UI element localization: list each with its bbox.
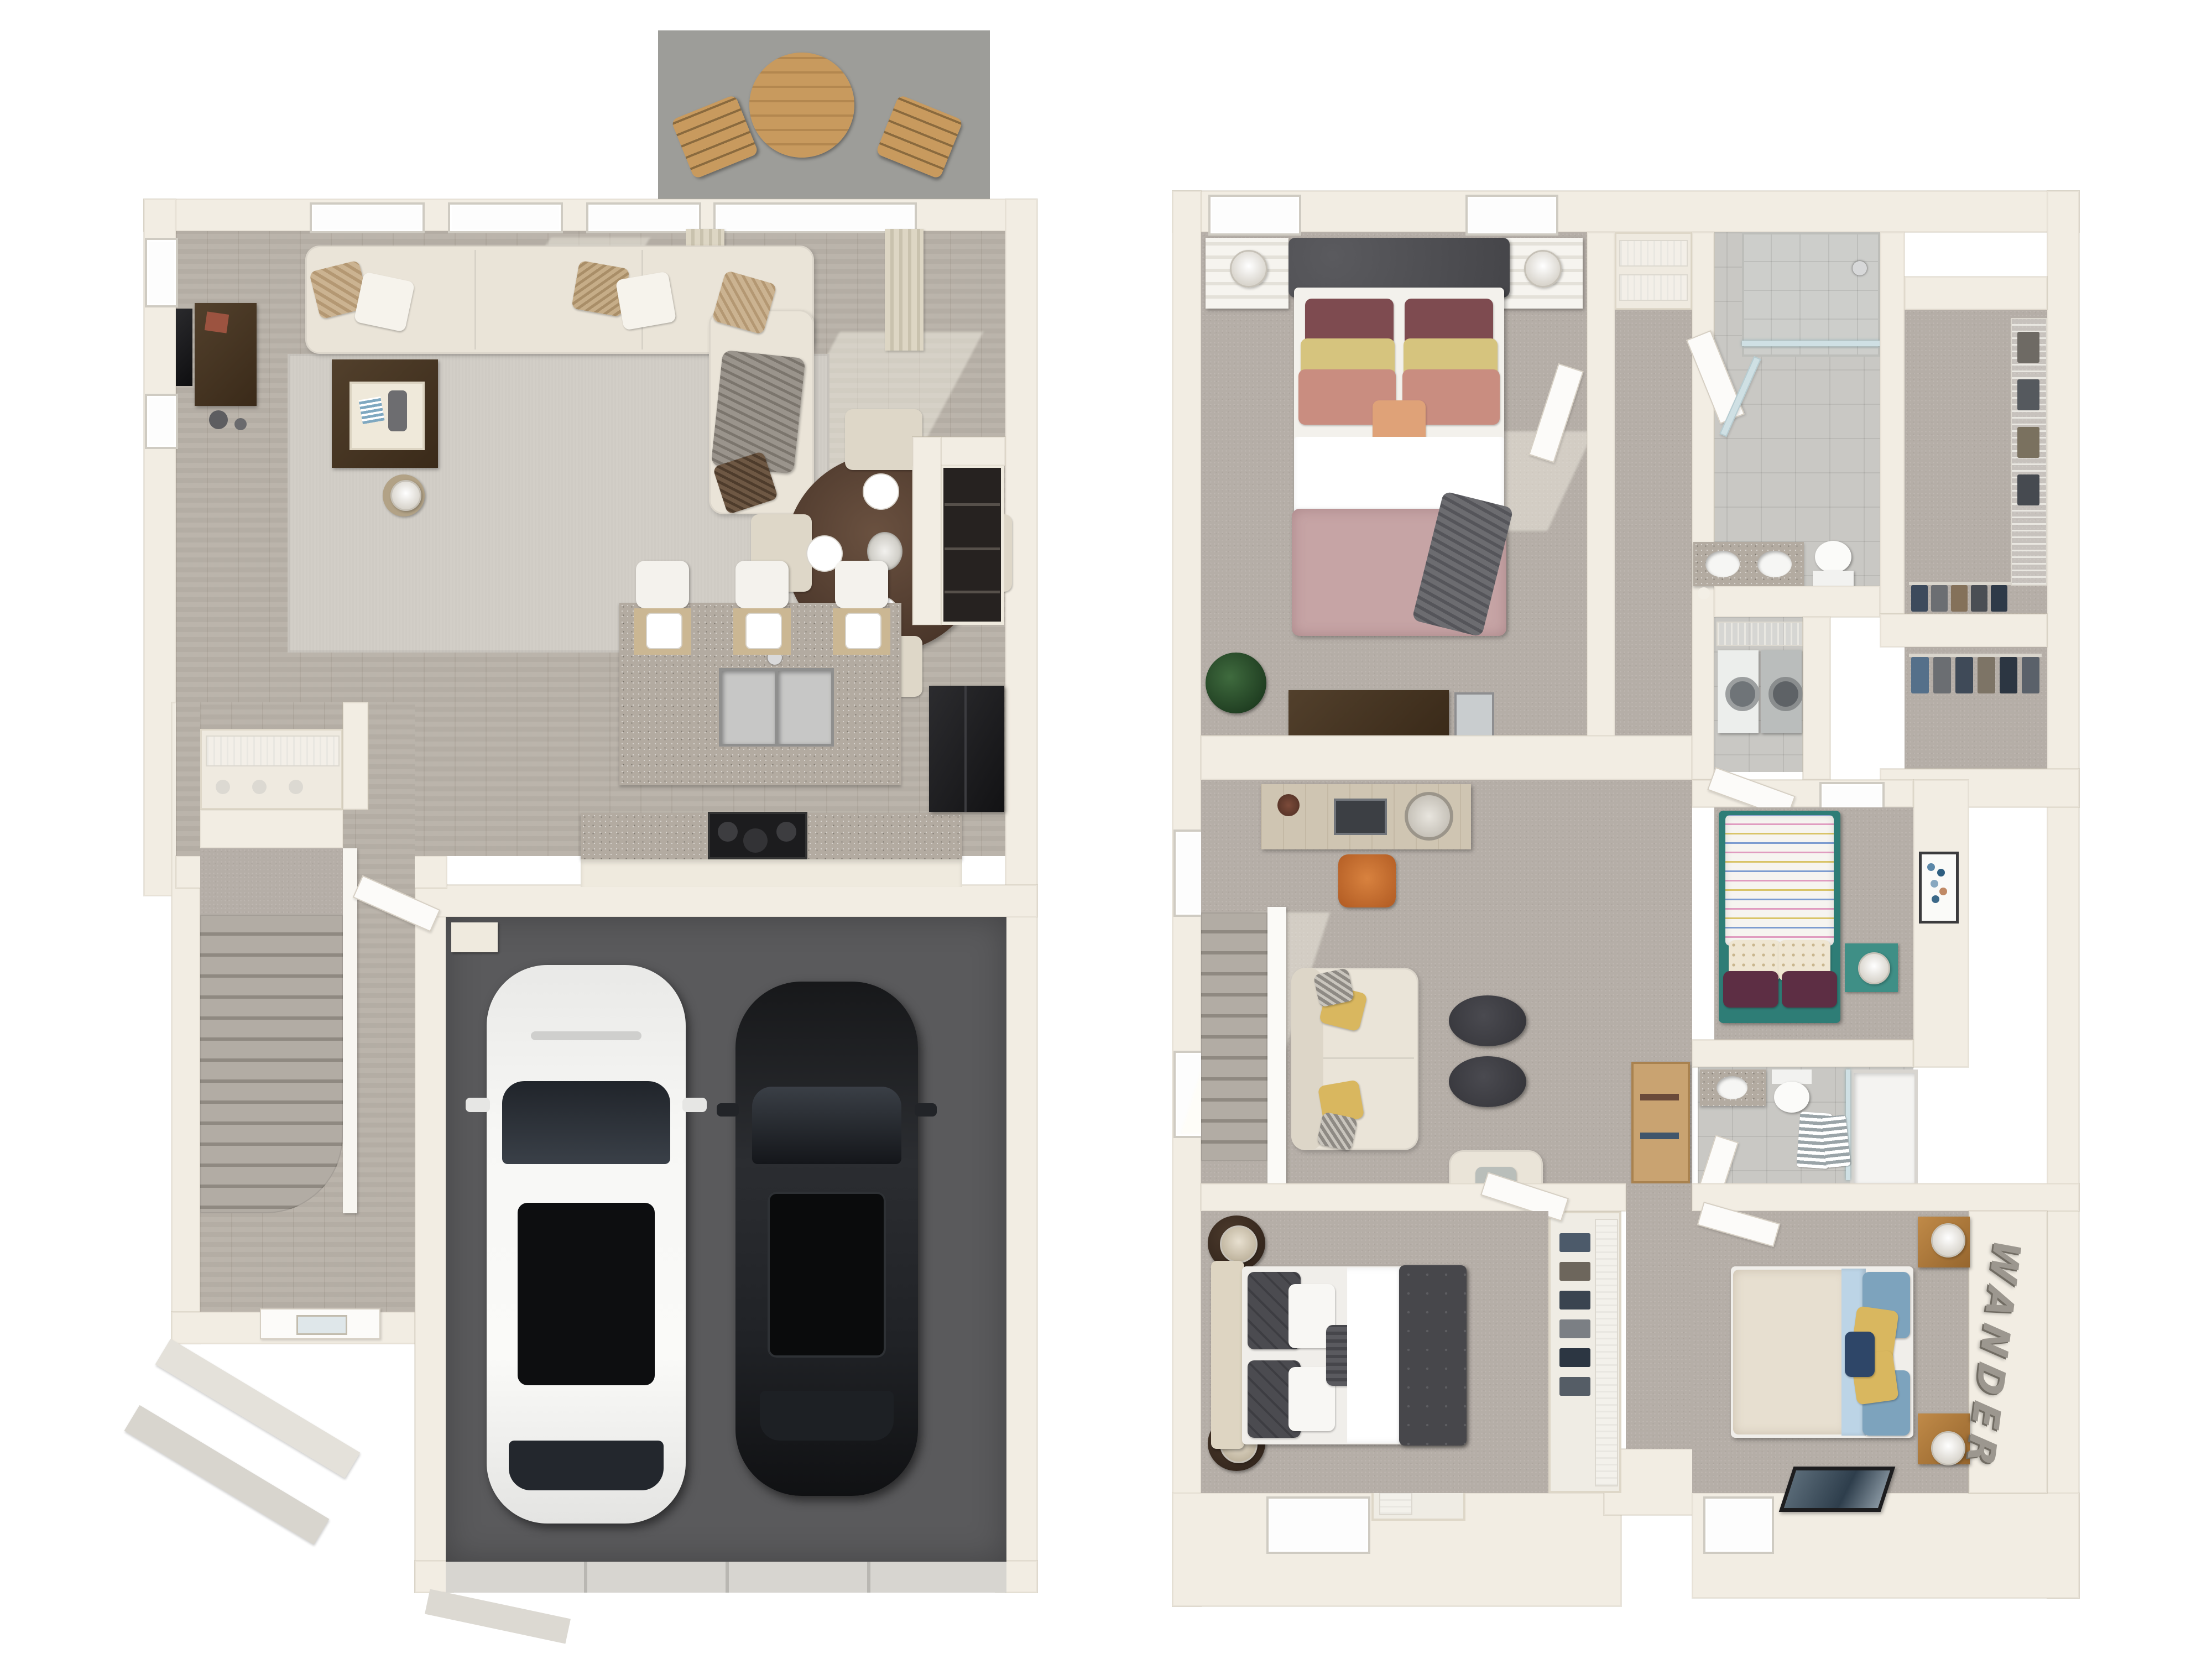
wall bbox=[1172, 191, 2079, 232]
sofa-seam bbox=[1323, 1057, 1414, 1059]
dresser bbox=[1288, 690, 1449, 735]
books bbox=[1640, 1094, 1679, 1100]
table-lamp bbox=[1230, 250, 1267, 288]
toilet bbox=[1815, 541, 1851, 573]
bed3-duvet-cream bbox=[1733, 1270, 1847, 1434]
hall-corridor bbox=[1626, 1183, 1692, 1449]
wall bbox=[1692, 232, 1714, 780]
washer bbox=[1718, 650, 1759, 733]
hall-bath-vanity bbox=[1700, 1070, 1766, 1106]
laptop bbox=[1334, 799, 1387, 835]
window bbox=[1266, 1496, 1370, 1554]
bedroom2-duvet-striped bbox=[1725, 815, 1834, 946]
vanity-sink bbox=[1757, 551, 1792, 577]
hanging-clothes bbox=[1911, 585, 1928, 612]
closet-niche bbox=[1548, 1211, 1621, 1493]
wall-art-dots bbox=[1919, 852, 1959, 924]
laundry-shelf bbox=[1717, 622, 1803, 646]
folded-clothes bbox=[2017, 332, 2039, 363]
closet-wire-shelf bbox=[1619, 240, 1688, 267]
wall bbox=[1692, 1040, 1913, 1067]
window bbox=[1208, 195, 1301, 236]
shower-glass bbox=[1742, 341, 1880, 346]
linen-closet bbox=[1615, 232, 1692, 310]
hanging-clothes bbox=[1559, 1233, 1590, 1252]
pillow-gray-pattern bbox=[1316, 1112, 1358, 1151]
wall bbox=[1587, 232, 1615, 780]
dryer-door bbox=[1768, 677, 1803, 711]
ottoman bbox=[1449, 995, 1526, 1046]
desk-fan bbox=[1405, 792, 1453, 841]
dryer bbox=[1761, 650, 1802, 733]
table-lamp bbox=[1220, 1225, 1258, 1263]
master-vanity bbox=[1693, 542, 1804, 586]
bed4-headboard bbox=[1211, 1261, 1244, 1449]
wall bbox=[1905, 276, 2047, 310]
pillow-navy bbox=[1845, 1332, 1875, 1377]
wall bbox=[1803, 617, 1830, 780]
second-floor-plan: WANDER bbox=[0, 0, 2212, 1659]
ottoman bbox=[1449, 1056, 1526, 1107]
wall bbox=[1880, 232, 1905, 614]
desk bbox=[1261, 784, 1471, 849]
table-lamp bbox=[1524, 250, 1562, 288]
floorplan-canvas: WANDER bbox=[0, 0, 2212, 1659]
toilet-tank bbox=[1813, 571, 1854, 587]
desk-plant bbox=[1277, 794, 1300, 816]
table-lamp bbox=[1858, 952, 1890, 984]
potted-plant bbox=[1206, 653, 1266, 713]
wall bbox=[1692, 1183, 2079, 1211]
stair-half-wall bbox=[1267, 907, 1286, 1183]
bathtub bbox=[1850, 1070, 1918, 1187]
dresser-mirror bbox=[1454, 692, 1494, 739]
window bbox=[1703, 1496, 1774, 1554]
wall bbox=[1913, 780, 1969, 1067]
bookcase-console bbox=[1631, 1062, 1690, 1183]
toilet bbox=[1774, 1082, 1809, 1113]
vanity-sink bbox=[1717, 1076, 1747, 1099]
shower-head bbox=[1853, 261, 1867, 275]
pillow-plum bbox=[1782, 971, 1837, 1008]
upstairs-hallway bbox=[1615, 310, 1692, 735]
window bbox=[1819, 782, 1885, 811]
closet-rod bbox=[1909, 654, 2042, 657]
wall bbox=[1201, 735, 1692, 780]
leaning-framed-art bbox=[1779, 1467, 1896, 1512]
table-lamp bbox=[1931, 1223, 1965, 1258]
wall bbox=[2047, 191, 2079, 1598]
vanity-sink bbox=[1705, 551, 1740, 577]
art-dots bbox=[1927, 863, 1935, 871]
vanity-lights bbox=[1698, 587, 1710, 599]
hanging-clothes bbox=[1911, 657, 1929, 693]
wall bbox=[1880, 614, 2047, 647]
closet-wire-shelf bbox=[1619, 274, 1688, 301]
bed4-duvet-dark bbox=[1399, 1265, 1467, 1446]
desk-chair-orange bbox=[1338, 854, 1396, 907]
closet-shelving bbox=[1595, 1219, 1618, 1486]
walk-in-shower bbox=[1742, 232, 1880, 357]
washer-door bbox=[1725, 677, 1760, 711]
striped-towels bbox=[1821, 1115, 1850, 1168]
staircase-well bbox=[1201, 912, 1267, 1161]
wall bbox=[1714, 586, 1880, 617]
window bbox=[1465, 195, 1558, 236]
pillow-plum bbox=[1723, 971, 1778, 1008]
